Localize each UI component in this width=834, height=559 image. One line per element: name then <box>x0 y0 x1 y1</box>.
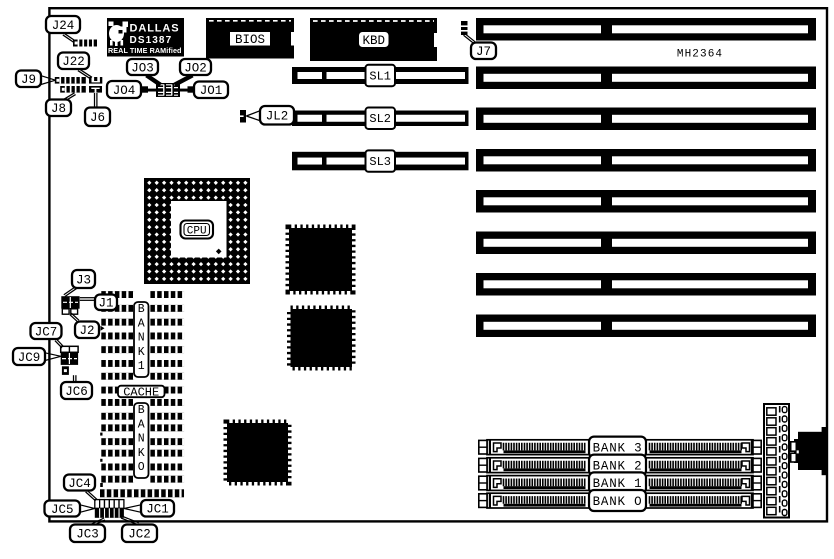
svg-text:SL2: SL2 <box>369 112 391 126</box>
svg-text:JC6: JC6 <box>65 385 88 399</box>
svg-text:JC3: JC3 <box>76 528 99 542</box>
svg-text:REAL TIME RAMified: REAL TIME RAMified <box>108 46 182 55</box>
svg-text:J7: J7 <box>476 45 491 59</box>
svg-text:J3: J3 <box>76 273 91 287</box>
svg-text:JC7: JC7 <box>35 325 58 339</box>
svg-text:CPU: CPU <box>187 226 207 238</box>
svg-text:B: B <box>138 404 145 417</box>
svg-text:J1: J1 <box>98 297 113 311</box>
svg-text:J6: J6 <box>90 111 105 125</box>
svg-text:DALLAS: DALLAS <box>130 23 180 35</box>
svg-text:N: N <box>138 332 145 345</box>
svg-text:BANK O: BANK O <box>593 495 643 509</box>
svg-text:J8: J8 <box>51 102 66 116</box>
svg-text:B: B <box>138 303 145 316</box>
svg-text:J22: J22 <box>62 55 85 69</box>
svg-text:BANK 3: BANK 3 <box>593 441 643 455</box>
svg-text:1: 1 <box>138 360 145 373</box>
svg-text:K: K <box>138 346 145 359</box>
svg-text:JO2: JO2 <box>184 61 207 75</box>
svg-text:KBD: KBD <box>362 34 385 48</box>
svg-text:JC5: JC5 <box>51 503 74 517</box>
svg-text:JC9: JC9 <box>18 351 41 365</box>
svg-text:J2: J2 <box>79 324 94 338</box>
svg-text:A: A <box>138 317 145 330</box>
svg-text:BIOS: BIOS <box>235 33 265 47</box>
svg-text:A: A <box>138 418 145 431</box>
svg-text:SL1: SL1 <box>369 69 391 83</box>
svg-text:JO3: JO3 <box>131 61 154 75</box>
svg-text:K: K <box>138 447 145 460</box>
svg-text:JO1: JO1 <box>200 84 223 98</box>
svg-text:JO4: JO4 <box>113 84 136 98</box>
svg-text:JC2: JC2 <box>128 528 151 542</box>
svg-text:JC4: JC4 <box>68 477 91 491</box>
svg-text:DS1387: DS1387 <box>130 35 173 46</box>
svg-text:J9: J9 <box>21 73 36 87</box>
svg-text:J24: J24 <box>52 19 75 33</box>
svg-text:N: N <box>138 433 145 446</box>
svg-text:CACHE: CACHE <box>123 386 159 400</box>
svg-text:JC1: JC1 <box>146 503 169 517</box>
svg-text:MH2364: MH2364 <box>677 49 723 61</box>
svg-text:SL3: SL3 <box>369 155 391 169</box>
svg-text:JL2: JL2 <box>266 110 289 124</box>
svg-text:O: O <box>138 461 145 474</box>
